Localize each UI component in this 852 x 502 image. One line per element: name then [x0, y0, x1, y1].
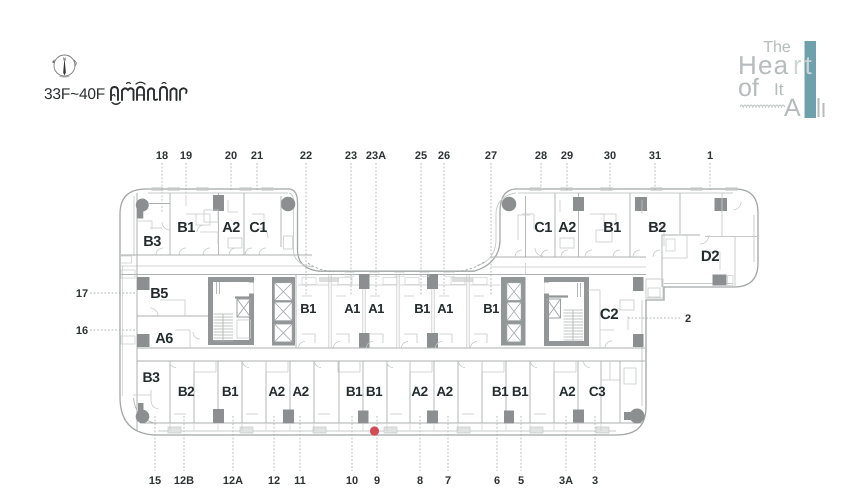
svg-text:9: 9 — [374, 475, 380, 487]
svg-text:6: 6 — [494, 475, 500, 487]
svg-text:A2: A2 — [436, 384, 452, 399]
svg-text:rt: rt — [793, 50, 815, 80]
svg-text:1: 1 — [707, 150, 713, 162]
svg-text:8: 8 — [417, 475, 423, 487]
svg-text:30: 30 — [604, 150, 616, 162]
svg-text:B1: B1 — [483, 301, 499, 316]
svg-text:12A: 12A — [223, 475, 243, 487]
svg-text:It: It — [774, 80, 784, 99]
svg-text:27: 27 — [485, 150, 497, 162]
svg-text:B1: B1 — [366, 384, 383, 399]
svg-text:10: 10 — [346, 475, 358, 487]
svg-text:C3: C3 — [589, 384, 606, 399]
svg-text:A: A — [784, 94, 801, 122]
svg-text:A2: A2 — [558, 220, 576, 236]
svg-text:A1: A1 — [344, 301, 360, 316]
svg-text:31: 31 — [649, 150, 661, 162]
svg-text:12B: 12B — [174, 475, 194, 487]
svg-text:B1: B1 — [346, 384, 363, 399]
svg-text:A2: A2 — [411, 384, 427, 399]
svg-text:of: of — [738, 74, 759, 102]
svg-text:20: 20 — [225, 150, 237, 162]
svg-text:C1: C1 — [249, 220, 267, 236]
svg-text:N: N — [63, 56, 66, 61]
svg-text:D2: D2 — [701, 248, 719, 265]
svg-text:A6: A6 — [155, 331, 173, 347]
svg-text:C2: C2 — [600, 306, 618, 323]
svg-text:12: 12 — [268, 475, 280, 487]
svg-text:29: 29 — [561, 150, 573, 162]
svg-text:18: 18 — [156, 150, 168, 162]
svg-text:B1: B1 — [512, 384, 529, 399]
svg-text:A1: A1 — [437, 301, 453, 316]
svg-text:B1: B1 — [222, 384, 239, 399]
svg-text:B2: B2 — [648, 220, 666, 236]
svg-text:15: 15 — [149, 475, 161, 487]
svg-text:B1: B1 — [177, 220, 195, 236]
svg-text:33F~40F: 33F~40F — [44, 86, 105, 103]
svg-text:11: 11 — [294, 475, 306, 487]
svg-text:B1: B1 — [414, 301, 430, 316]
svg-text:B3: B3 — [143, 234, 161, 250]
svg-text:A2: A2 — [292, 384, 308, 399]
svg-text:26: 26 — [438, 150, 450, 162]
svg-text:A1: A1 — [368, 301, 384, 316]
svg-text:B1: B1 — [603, 220, 621, 236]
svg-text:22: 22 — [300, 150, 312, 162]
svg-text:3A: 3A — [559, 475, 573, 487]
svg-text:3: 3 — [592, 475, 598, 487]
svg-text:21: 21 — [251, 150, 263, 162]
svg-text:19: 19 — [180, 150, 192, 162]
svg-text:28: 28 — [535, 150, 547, 162]
svg-text:B2: B2 — [178, 384, 194, 399]
svg-text:B1: B1 — [300, 301, 316, 316]
svg-text:C1: C1 — [534, 220, 552, 236]
svg-text:25: 25 — [415, 150, 427, 162]
svg-text:B3: B3 — [143, 369, 161, 385]
svg-text:5: 5 — [518, 475, 524, 487]
svg-text:16: 16 — [76, 325, 88, 337]
svg-text:23: 23 — [345, 150, 357, 162]
svg-text:2: 2 — [685, 313, 691, 325]
svg-text:17: 17 — [76, 288, 88, 300]
svg-text:A2: A2 — [559, 384, 575, 399]
svg-text:B1: B1 — [492, 384, 509, 399]
svg-text:A2: A2 — [268, 384, 284, 399]
svg-text:A2: A2 — [222, 220, 240, 236]
svg-text:7: 7 — [445, 475, 451, 487]
svg-text:23A: 23A — [366, 150, 386, 162]
svg-text:B5: B5 — [150, 286, 168, 302]
